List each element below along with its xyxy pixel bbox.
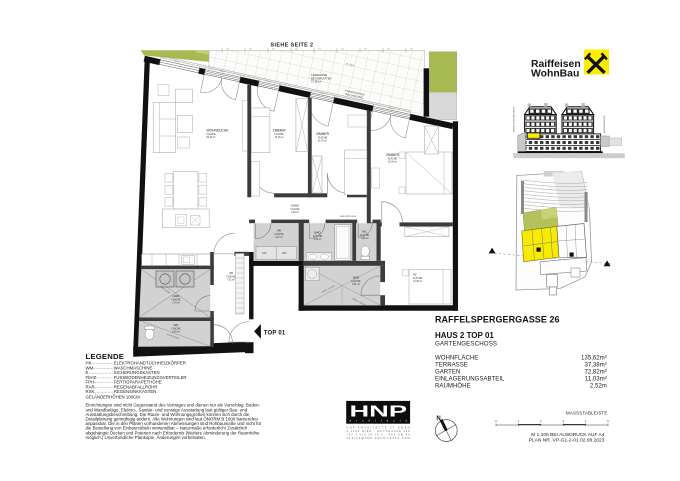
svg-text:WOHNFLÄCHE: WOHNFLÄCHE [435, 355, 478, 362]
svg-text:SZ: SZ [413, 273, 417, 277]
svg-text:GELÄNDERHÖHEN 100CM: GELÄNDERHÖHEN 100CM [86, 394, 141, 399]
svg-text:5,91 m²: 5,91 m² [352, 283, 360, 286]
svg-text:7,24 m²: 7,24 m² [172, 302, 180, 305]
svg-text:GARTENGESCHOSS: GARTENGESCHOSS [435, 340, 497, 347]
svg-text:WC: WC [174, 323, 179, 327]
svg-text:GW: GW [262, 251, 267, 255]
svg-text:340: 340 [387, 49, 390, 51]
svg-text:FLÄCHE: FLÄCHE [171, 298, 181, 301]
svg-text:TOP 01: TOP 01 [264, 330, 286, 336]
svg-text:WOHNKÜCHE: WOHNKÜCHE [207, 129, 230, 133]
svg-text:72,82m²: 72,82m² [584, 369, 606, 376]
svg-text:340: 340 [410, 49, 413, 51]
svg-text:ZIMMER: ZIMMER [386, 153, 400, 157]
svg-text:M 1:100 BEI AUSDRUCK AUF: M 1:100 BEI AUSDRUCK AUF A4 [531, 432, 605, 438]
svg-text:15,16 m²: 15,16 m² [275, 136, 284, 139]
svg-text:11,76 m²: 11,76 m² [318, 140, 327, 143]
svg-text:ZIMMER: ZIMMER [316, 132, 330, 136]
svg-text:2,52m: 2,52m [590, 383, 607, 390]
svg-text:340: 340 [341, 49, 344, 51]
svg-text:WC: WC [362, 230, 367, 234]
svg-text:1,84 m²: 1,84 m² [172, 331, 180, 334]
svg-text:HAUS 2 TOP 01: HAUS 2 TOP 01 [435, 331, 494, 340]
svg-text:HNP: HNP [350, 404, 408, 421]
svg-text:1,68 m²: 1,68 m² [361, 237, 369, 240]
svg-text:ZIMMER: ZIMMER [273, 128, 287, 132]
svg-text:FLÄCHE: FLÄCHE [226, 275, 236, 278]
svg-text:AR: AR [277, 229, 281, 233]
svg-text:13,28 m²: 13,28 m² [413, 280, 422, 283]
svg-text:FLÄCHE: FLÄCHE [318, 137, 328, 140]
svg-text:TERRASSE: TERRASSE [435, 362, 468, 369]
svg-text:4,03 m²: 4,03 m² [291, 211, 299, 214]
svg-text:37,38 m²: 37,38 m² [311, 80, 321, 84]
svg-text:DW: DW [282, 251, 287, 255]
svg-text:FLÄCHE: FLÄCHE [171, 327, 181, 330]
svg-text:PLAN NR. VP-G1-2-01 02.08: PLAN NR. VP-G1-2-01 02.08.2023 [529, 438, 605, 444]
svg-text:FLÄCHE: FLÄCHE [274, 233, 284, 236]
svg-text:GARTEN: GARTEN [435, 369, 460, 376]
svg-text:EINLAGERUNGSABTEIL: EINLAGERUNGSABTEIL [435, 376, 505, 383]
svg-text:FLÄCHE: FLÄCHE [275, 133, 285, 136]
svg-text:FLÄCHE: FLÄCHE [388, 158, 398, 161]
svg-text:340: 340 [364, 49, 367, 51]
svg-text:50,25 m²: 50,25 m² [207, 136, 216, 139]
svg-text:SIEHE SEITE 2: SIEHE SEITE 2 [271, 43, 314, 49]
svg-text:WohnBau: WohnBau [531, 69, 579, 80]
svg-text:HWR: HWR [173, 294, 180, 298]
svg-text:OFFICE@HNP-ARCHITECTS.COM: OFFICE@HNP-ARCHITECTS.COM [347, 437, 410, 440]
svg-text:TERRASSE: TERRASSE [311, 73, 327, 77]
svg-text:RAFFELSPERGERGASSE: RAFFELSPERGERGASSE [513, 106, 516, 132]
svg-text:16,34 m²: 16,34 m² [388, 161, 397, 164]
svg-text:FbHZ VERTEILER: FbHZ VERTEILER [330, 220, 347, 222]
svg-text:37,38m²: 37,38m² [584, 362, 606, 369]
svg-text:4,63 m²: 4,63 m² [314, 238, 322, 241]
svg-text:340: 340 [272, 49, 275, 51]
svg-text:11,03m²: 11,03m² [585, 376, 607, 383]
svg-text:RAFFELSPERGERGASSE 26: RAFFELSPERGERGASSE 26 [435, 315, 560, 325]
svg-text:3,12 m²: 3,12 m² [275, 236, 283, 239]
svg-text:HWB VERTEILER: HWB VERTEILER [340, 216, 357, 218]
svg-text:möglich.) Unverbindliche Plank: möglich.) Unverbindliche Plankopie, Ände… [86, 435, 206, 440]
svg-text:FLÄCHE: FLÄCHE [207, 133, 217, 136]
svg-text:MASSSTABLEISTE: MASSSTABLEISTE [566, 411, 608, 416]
svg-text:LEGENDE: LEGENDE [86, 352, 125, 361]
svg-text:340: 340 [249, 49, 252, 51]
svg-text:N: N [436, 416, 440, 422]
svg-text:VR: VR [229, 271, 233, 275]
svg-text:RAUMHÖHE: RAUMHÖHE [435, 383, 471, 390]
svg-text:FLÄCHE: FLÄCHE [290, 208, 300, 211]
svg-text:MUTHSAMGASSE: MUTHSAMGASSE [603, 115, 606, 133]
svg-text:BAD: BAD [353, 276, 359, 280]
svg-text:FLÄCHE: FLÄCHE [413, 277, 423, 280]
svg-text:135,62m²: 135,62m² [581, 355, 607, 362]
svg-text:BAD: BAD [315, 231, 321, 235]
svg-text:340: 340 [226, 49, 229, 51]
svg-text:340: 340 [318, 49, 321, 51]
svg-text:FLÄCHE: FLÄCHE [351, 280, 361, 283]
svg-text:340: 340 [295, 49, 298, 51]
svg-text:GANG: GANG [291, 204, 300, 208]
svg-text:7,51 m²: 7,51 m² [227, 279, 235, 282]
